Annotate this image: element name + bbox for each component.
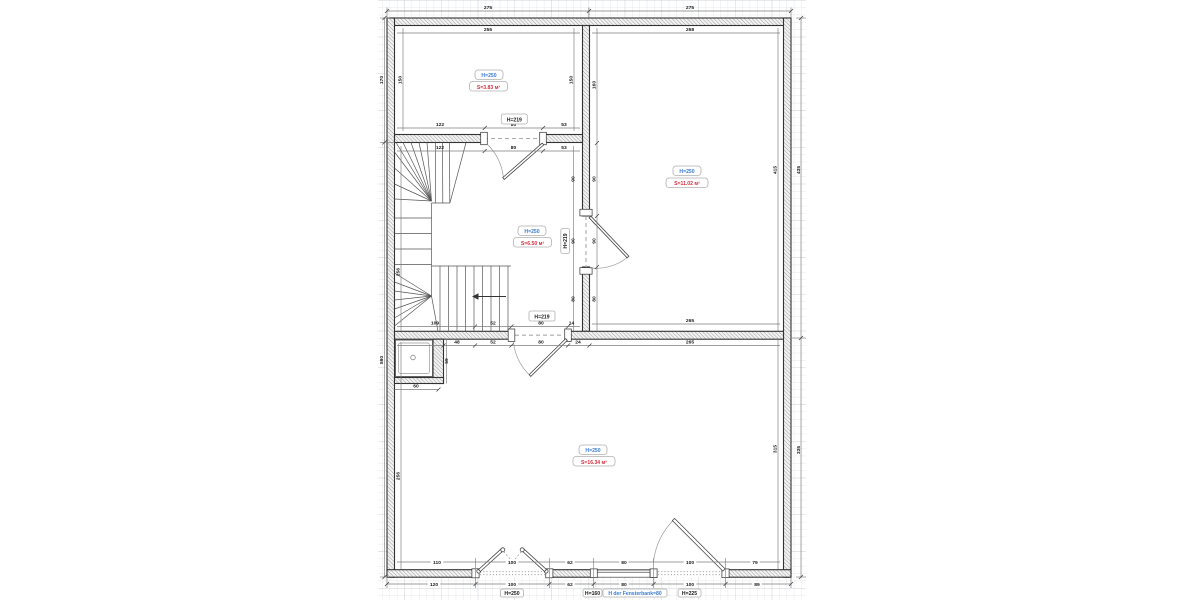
svg-text:80: 80: [571, 296, 577, 302]
svg-text:90: 90: [592, 176, 598, 182]
svg-text:256: 256: [396, 472, 402, 480]
svg-text:590: 590: [379, 356, 385, 364]
svg-text:80: 80: [621, 560, 627, 566]
svg-text:100: 100: [686, 582, 694, 588]
svg-text:52: 52: [490, 321, 496, 327]
svg-text:H=250: H=250: [524, 229, 539, 235]
svg-text:H=219: H=219: [507, 117, 522, 123]
svg-text:62: 62: [567, 560, 573, 566]
svg-text:110: 110: [433, 560, 441, 566]
svg-text:80: 80: [621, 582, 627, 588]
svg-text:170: 170: [379, 76, 385, 84]
svg-text:53: 53: [561, 145, 567, 151]
svg-text:60: 60: [413, 384, 419, 390]
svg-text:100: 100: [686, 560, 694, 566]
svg-text:62: 62: [567, 582, 573, 588]
svg-text:H=250: H=250: [504, 591, 519, 597]
svg-text:90: 90: [592, 238, 598, 244]
svg-text:150: 150: [398, 76, 404, 84]
svg-text:59: 59: [444, 358, 450, 364]
svg-text:H=219: H=219: [563, 233, 569, 248]
svg-text:265: 265: [686, 318, 694, 324]
svg-text:24: 24: [575, 340, 581, 346]
svg-text:265: 265: [686, 340, 694, 346]
svg-text:S=11.02 м²: S=11.02 м²: [674, 181, 700, 187]
svg-text:415: 415: [773, 166, 779, 174]
svg-text:S=16.34 м²: S=16.34 м²: [581, 460, 607, 466]
svg-text:H=250: H=250: [679, 169, 694, 175]
svg-text:H=219: H=219: [534, 314, 549, 320]
svg-text:S=6.50 м²: S=6.50 м²: [521, 241, 544, 247]
svg-text:80: 80: [538, 340, 544, 346]
svg-text:H=250: H=250: [585, 448, 600, 454]
svg-text:S=3.83 м²: S=3.83 м²: [477, 85, 500, 91]
svg-text:53: 53: [561, 122, 567, 128]
svg-text:52: 52: [490, 340, 496, 346]
svg-text:255: 255: [484, 27, 492, 33]
svg-text:80: 80: [592, 296, 598, 302]
svg-text:79: 79: [752, 560, 758, 566]
svg-text:122: 122: [436, 122, 444, 128]
svg-text:90: 90: [571, 238, 577, 244]
svg-text:122: 122: [436, 145, 444, 151]
svg-text:100: 100: [508, 560, 516, 566]
svg-text:435: 435: [796, 166, 802, 174]
svg-text:14: 14: [569, 321, 575, 327]
svg-text:275: 275: [686, 5, 694, 11]
svg-text:48: 48: [454, 340, 460, 346]
svg-text:275: 275: [484, 5, 492, 11]
svg-text:109: 109: [431, 321, 439, 327]
svg-text:120: 120: [430, 582, 438, 588]
svg-text:80: 80: [511, 145, 517, 151]
svg-text:150: 150: [569, 76, 575, 84]
svg-text:H=250: H=250: [481, 73, 496, 79]
svg-text:H der Fensterbank=80: H der Fensterbank=80: [608, 591, 662, 597]
svg-text:H=225: H=225: [682, 591, 697, 597]
svg-text:89: 89: [754, 582, 760, 588]
svg-text:256: 256: [396, 268, 402, 276]
svg-text:160: 160: [592, 81, 598, 89]
svg-text:90: 90: [571, 176, 577, 182]
svg-text:100: 100: [508, 582, 516, 588]
svg-text:335: 335: [796, 446, 802, 454]
svg-text:268: 268: [686, 27, 694, 33]
svg-text:315: 315: [773, 445, 779, 453]
svg-text:H=160: H=160: [585, 591, 600, 597]
